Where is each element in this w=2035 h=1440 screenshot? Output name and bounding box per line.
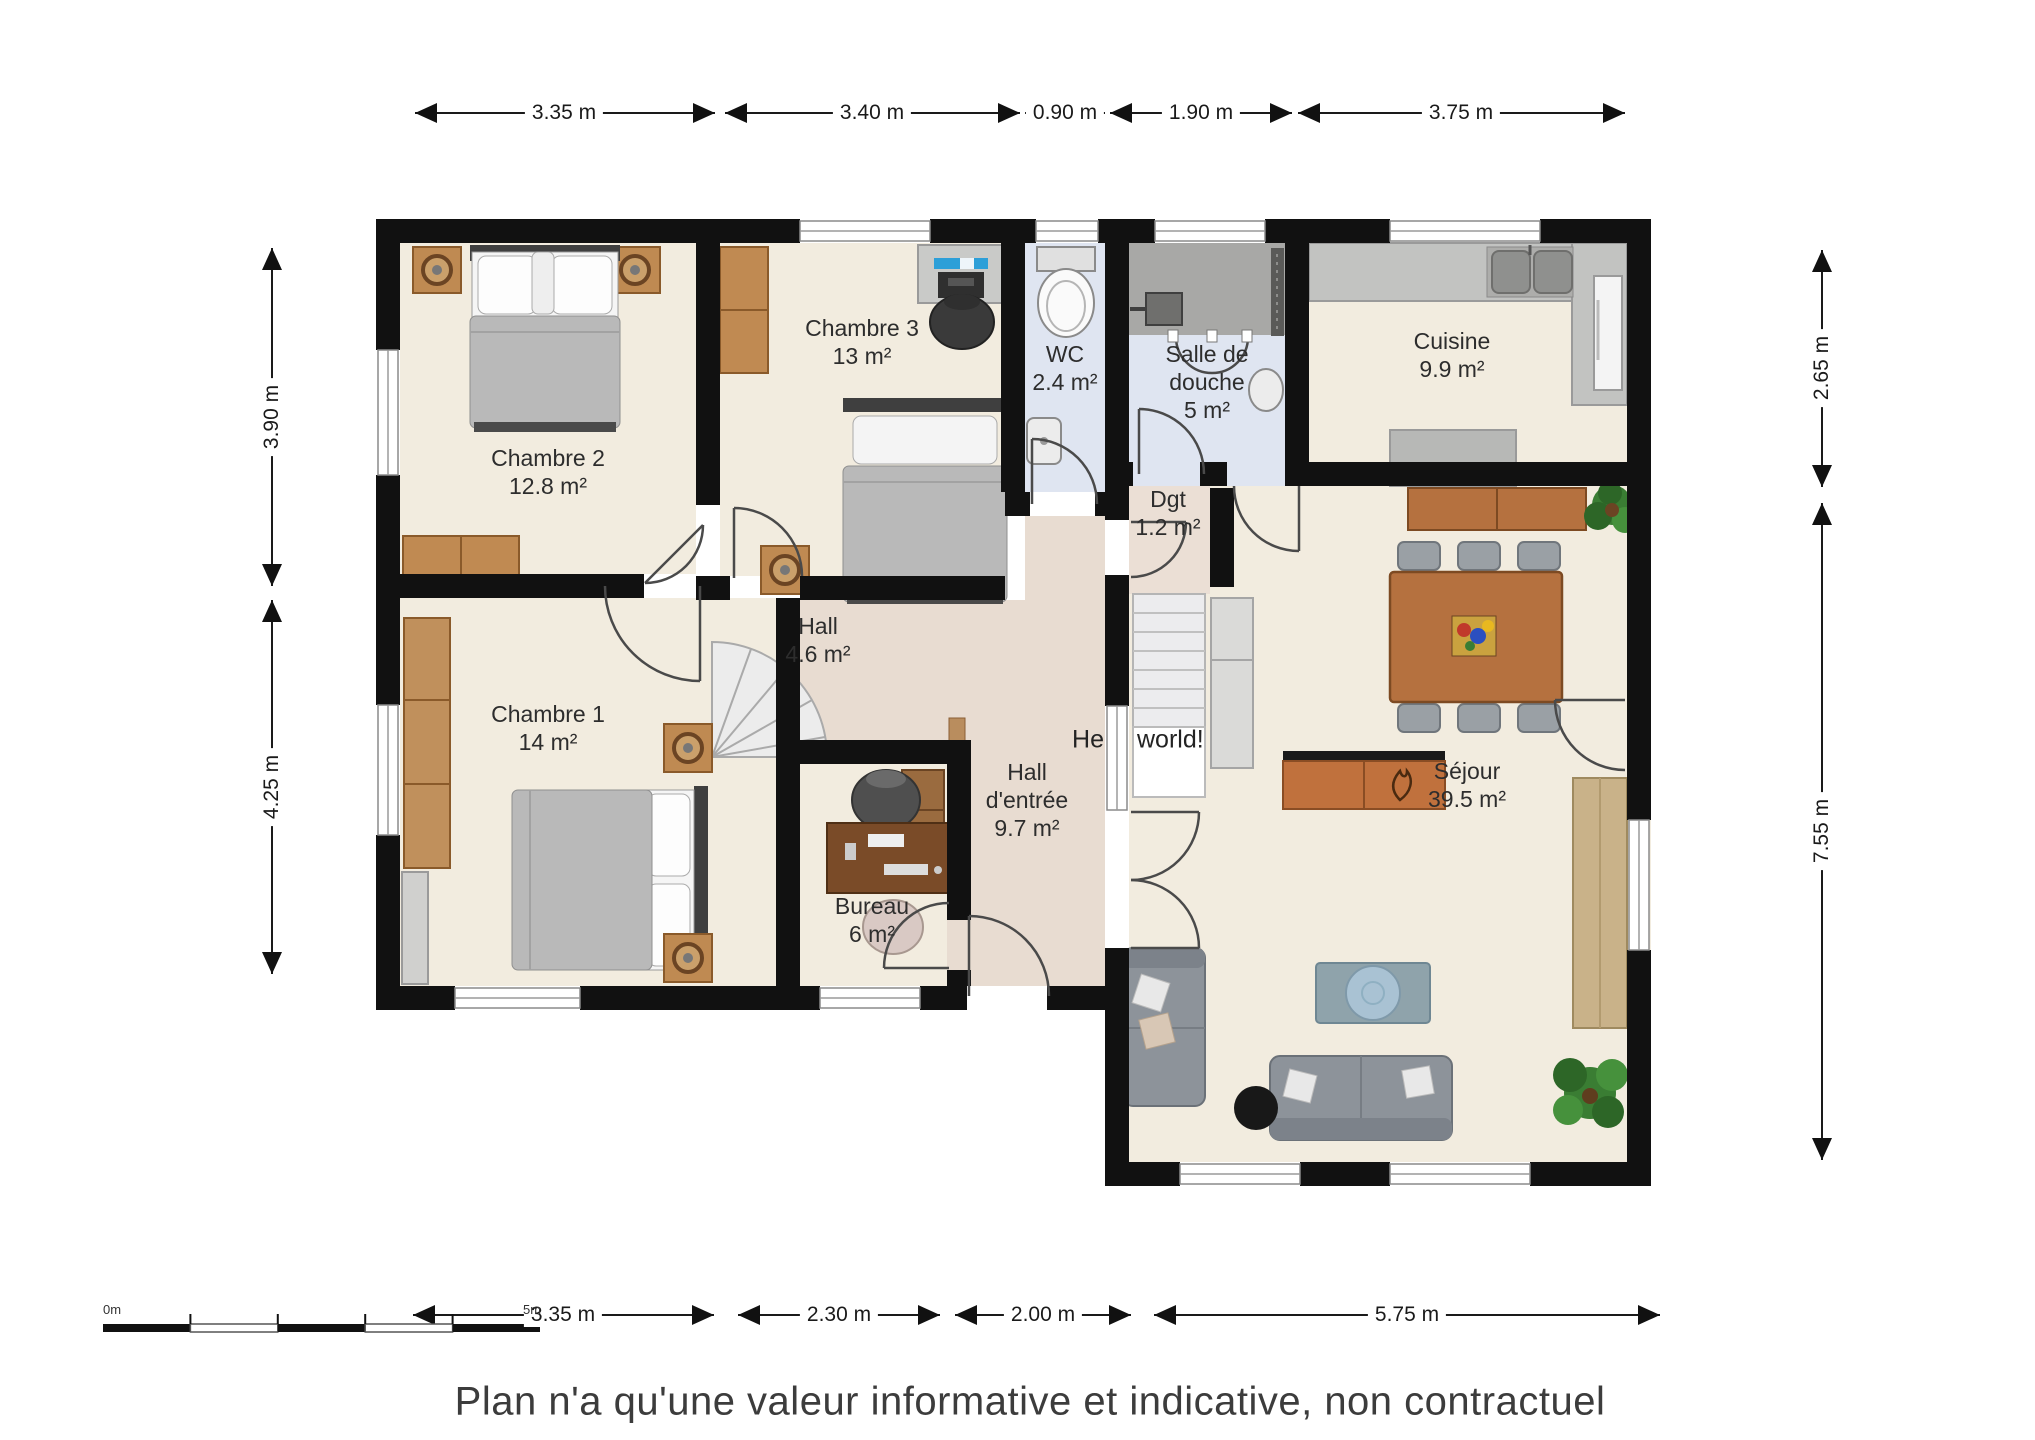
room-area: 2.4 m² [1032,368,1097,396]
room-name: Dgt [1135,485,1200,513]
room-area: 14 m² [491,728,605,756]
double-bed [470,245,620,432]
dim-bottom-3: 2.00 m [1004,1303,1082,1327]
hello-world-text-right: world! [1137,726,1204,755]
tv-fireplace-unit [1283,751,1445,809]
dim-top-3: 0.90 m [1026,101,1104,125]
floor-plan: Chambre 2 12.8 m² Chambre 3 13 m² WC 2.4… [0,0,2035,1440]
dim-top-5: 3.75 m [1422,101,1500,125]
room-name: Chambre 2 [491,444,605,472]
fruit-painting [1452,616,1496,656]
side-table [1234,1086,1278,1130]
room-area: 1.2 m² [1135,513,1200,541]
room-area: 12.8 m² [491,472,605,500]
room-name: Chambre 3 [805,314,919,342]
room-area: 5 m² [1148,396,1266,424]
room-label-douche: Salle de douche 5 m² [1148,340,1266,424]
sofa-left [1123,948,1205,1106]
room-area: 9.7 m² [965,814,1089,842]
room-label-chambre2: Chambre 2 12.8 m² [491,444,605,500]
hall-corridor-floor [1025,516,1105,600]
single-bed [843,398,1007,604]
coffee-table [1316,963,1430,1023]
hello-world-text-left: He [1062,726,1104,755]
storage-cabinet [1211,598,1253,768]
washing-machine [1146,293,1182,325]
dim-top-1: 3.35 m [525,101,603,125]
sofa-bottom [1270,1056,1452,1140]
room-label-hall: Hall 4.6 m² [785,612,850,668]
towel-radiator [1271,248,1284,336]
floor-plan-drawing [0,0,2035,1440]
straight-staircase [1133,594,1205,797]
dim-bottom-4: 5.75 m [1368,1303,1446,1327]
room-label-cuisine: Cuisine 9.9 m² [1414,327,1491,383]
dim-top-4: 1.90 m [1162,101,1240,125]
room-label-chambre3: Chambre 3 13 m² [805,314,919,370]
dim-right-2: 7.55 m [1810,792,1834,870]
room-name: Chambre 1 [491,700,605,728]
dim-bottom-2: 2.30 m [800,1303,878,1327]
room-area: 13 m² [805,342,919,370]
room-label-chambre1: Chambre 1 14 m² [491,700,605,756]
room-area: 4.6 m² [785,640,850,668]
room-label-hall-entree: Hall d'entrée 9.7 m² [965,758,1089,842]
room-name: Séjour [1428,757,1506,785]
toilet-tank [1037,247,1095,271]
room-name: Salle de douche [1148,340,1266,396]
room-label-sejour: Séjour 39.5 m² [1428,757,1506,813]
room-name: Hall [785,612,850,640]
room-label-bureau: Bureau 6 m² [835,892,909,948]
room-name: Bureau [835,892,909,920]
scale-bar-start-label: 0m [103,1302,121,1317]
room-area: 39.5 m² [1428,785,1506,813]
room-name: Cuisine [1414,327,1491,355]
scale-bar-end-label: 5m [523,1302,541,1317]
room-name: Hall d'entrée [965,758,1089,814]
scale-bar [103,1314,540,1332]
room-area: 9.9 m² [1414,355,1491,383]
room-name: WC [1032,340,1097,368]
room-area: 6 m² [835,920,909,948]
wardrobe [404,618,450,868]
radiator [402,872,428,984]
room-label-wc: WC 2.4 m² [1032,340,1097,396]
dim-right-1: 2.65 m [1810,329,1834,407]
disclaimer-text: Plan n'a qu'une valeur informative et in… [455,1380,1606,1425]
dim-left-1: 3.90 m [260,378,284,456]
dim-left-2: 4.25 m [260,748,284,826]
room-label-dgt: Dgt 1.2 m² [1135,485,1200,541]
dim-top-2: 3.40 m [833,101,911,125]
